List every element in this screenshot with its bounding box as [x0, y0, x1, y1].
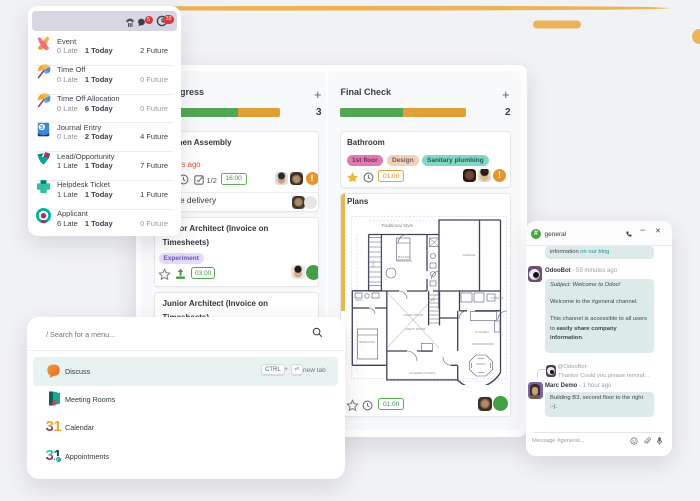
svg-text:STAIR: STAIR [372, 260, 376, 268]
svg-text:STORAGE: STORAGE [491, 296, 504, 300]
svg-text:COVERED PORCH: COVERED PORCH [409, 371, 436, 375]
svg-text:LIVING ROOM: LIVING ROOM [403, 313, 424, 317]
svg-text:GREAT ROOM: GREAT ROOM [405, 327, 426, 331]
svg-text:Traditional Style: Traditional Style [381, 223, 414, 228]
svg-text:DN: DN [431, 298, 435, 302]
svg-text:BATH: BATH [356, 298, 363, 302]
svg-text:BEDROOM: BEDROOM [396, 259, 412, 263]
svg-text:GARAGE: GARAGE [463, 253, 476, 257]
svg-text:DINING: DINING [476, 362, 485, 366]
svg-text:BEDROOM: BEDROOM [359, 340, 375, 344]
svg-text:KITCHEN: KITCHEN [475, 330, 488, 334]
